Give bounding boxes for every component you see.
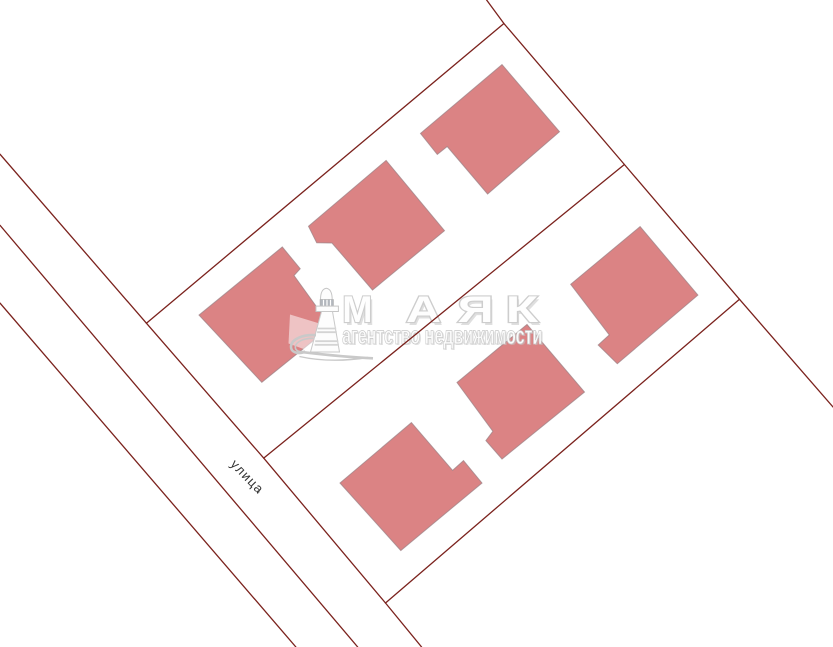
svg-text:агентство недвижимости: агентство недвижимости — [342, 321, 542, 350]
